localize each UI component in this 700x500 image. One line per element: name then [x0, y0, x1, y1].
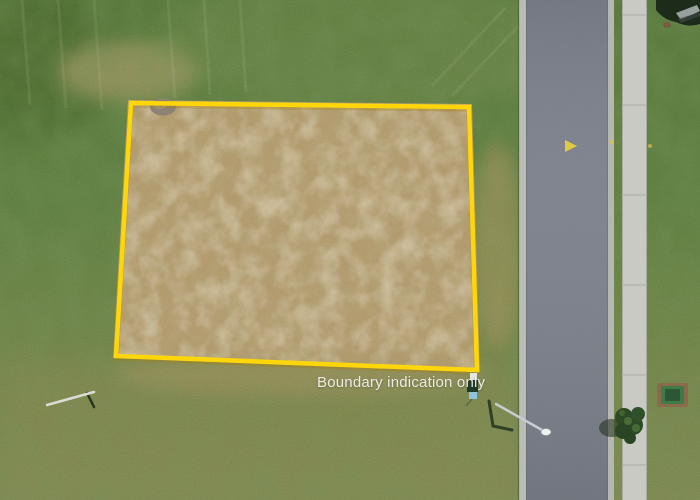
peg-base: [469, 392, 477, 399]
tree-highlight: [632, 424, 640, 432]
photo-canvas: [0, 0, 700, 500]
aerial-photo: Boundary indication only: [0, 0, 700, 500]
tree-foliage-lobe: [631, 407, 645, 421]
tree-highlight: [624, 417, 632, 425]
utility-box-group: [657, 383, 688, 407]
peg-body: [467, 380, 478, 392]
tree-foliage-lobe: [624, 432, 636, 444]
kerb-paint-dot: [610, 140, 614, 144]
peg-cap: [470, 373, 477, 380]
utility-box-lid: [665, 389, 680, 401]
lamp-head: [541, 429, 551, 436]
path-paint-dot: [648, 144, 652, 148]
tree-highlight: [619, 410, 625, 416]
dirt-spot: [663, 22, 671, 28]
